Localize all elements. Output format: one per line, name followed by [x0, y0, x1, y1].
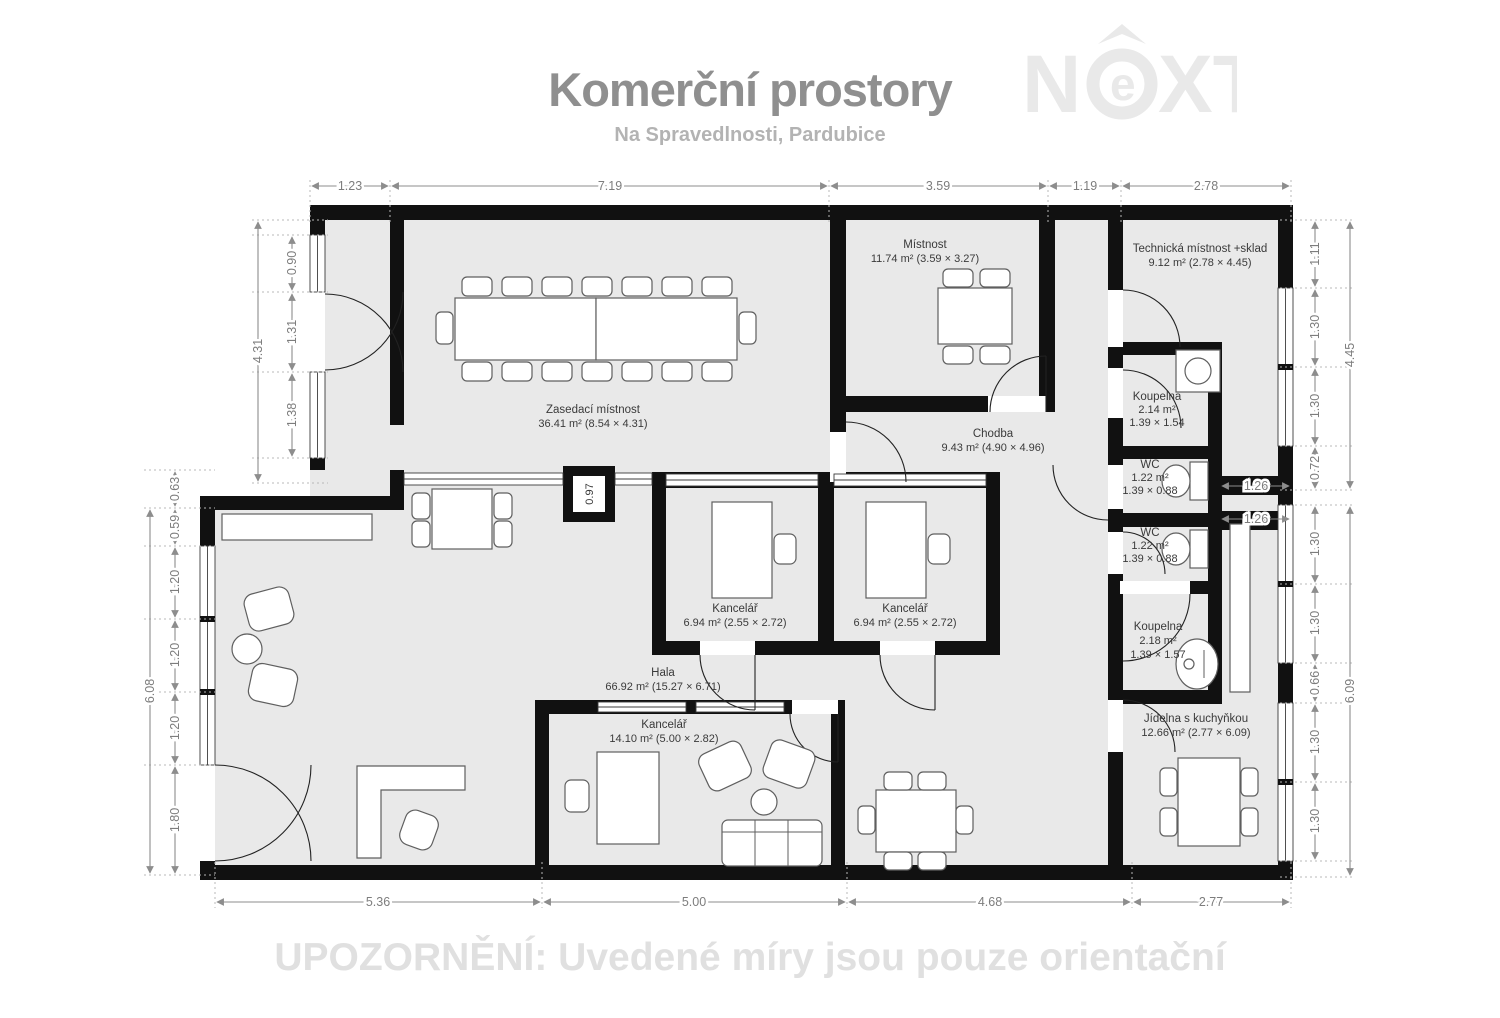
room-label: Místnost	[903, 239, 947, 251]
svg-text:1.11: 1.11	[1308, 242, 1322, 265]
room-label: Kancelář	[882, 603, 929, 615]
room-label: Koupelna	[1133, 391, 1182, 403]
svg-text:11.74 m² (3.59 × 3.27): 11.74 m² (3.59 × 3.27)	[871, 253, 979, 265]
floorplan-page: { "header": { "title": "Komerční prostor…	[0, 0, 1500, 1018]
room-label: Kancelář	[641, 719, 688, 731]
room-label: Technická místnost +sklad	[1133, 243, 1268, 255]
svg-text:4.45: 4.45	[1343, 343, 1357, 367]
dims-left-lower: 0.63 0.59 1.20 1.20 1.20 1.80 6.08	[143, 472, 182, 873]
desk	[866, 502, 926, 598]
office-chair	[565, 780, 589, 812]
room-label: Chodba	[973, 428, 1014, 440]
svg-text:1.30: 1.30	[1308, 730, 1322, 754]
svg-text:1.20: 1.20	[168, 716, 182, 740]
svg-text:1.23: 1.23	[338, 179, 362, 193]
furniture-zasedaci	[436, 277, 756, 381]
svg-text:4.68: 4.68	[978, 895, 1002, 909]
svg-text:5.36: 5.36	[366, 895, 390, 909]
svg-text:1.39 × 0.88: 1.39 × 0.88	[1122, 553, 1177, 565]
desk	[597, 752, 659, 844]
svg-text:12.66 m² (2.77 × 6.09): 12.66 m² (2.77 × 6.09)	[1141, 727, 1250, 739]
dims-right-lower: 1.30 1.30 0.66 1.30 1.30 6.09	[1308, 507, 1357, 875]
svg-text:14.10 m² (5.00 × 2.82): 14.10 m² (5.00 × 2.82)	[609, 733, 718, 745]
counter	[222, 514, 372, 540]
svg-text:6.08: 6.08	[143, 679, 157, 703]
svg-text:2.77: 2.77	[1199, 895, 1223, 909]
dims-bottom: 5.36 5.00 4.68 2.77	[217, 895, 1289, 909]
office-chair	[928, 534, 950, 564]
svg-text:1.22 m²: 1.22 m²	[1131, 540, 1169, 552]
room-label: WC	[1140, 459, 1159, 471]
toilet	[1190, 530, 1208, 568]
washbasin	[1176, 639, 1218, 689]
svg-text:6.94 m² (2.55 × 2.72): 6.94 m² (2.55 × 2.72)	[853, 617, 956, 629]
kitchen-counter	[1230, 524, 1250, 692]
side-table	[232, 634, 262, 664]
svg-text:1.38: 1.38	[285, 403, 299, 427]
svg-text:1.20: 1.20	[168, 643, 182, 667]
dims-left-upper: 0.90 1.31 1.38 4.31	[251, 222, 299, 481]
svg-text:1.26: 1.26	[1244, 479, 1268, 493]
svg-text:0.90: 0.90	[285, 251, 299, 275]
svg-text:0.63: 0.63	[168, 477, 182, 501]
dims-top: 1.23 7.19 3.59 1.19 2.78	[312, 179, 1289, 193]
room-label: Hala	[651, 667, 675, 679]
svg-text:1.80: 1.80	[168, 808, 182, 832]
conference-table	[596, 298, 737, 360]
svg-text:1.30: 1.30	[1308, 394, 1322, 418]
table	[432, 489, 492, 549]
svg-text:1.39 × 1.54: 1.39 × 1.54	[1129, 417, 1184, 429]
svg-text:6.09: 6.09	[1343, 679, 1357, 703]
svg-text:1.39 × 1.57: 1.39 × 1.57	[1130, 649, 1185, 661]
desk	[712, 502, 772, 598]
svg-text:3.59: 3.59	[926, 179, 950, 193]
svg-text:6.94 m² (2.55 × 2.72): 6.94 m² (2.55 × 2.72)	[683, 617, 786, 629]
svg-text:0.72: 0.72	[1308, 456, 1322, 480]
dims-right-upper: 1.11 1.30 1.30 0.72 4.45	[1308, 222, 1357, 488]
dining-table	[1178, 758, 1240, 846]
svg-text:1.39 × 0.88: 1.39 × 0.88	[1122, 485, 1177, 497]
svg-text:36.41 m² (8.54 × 4.31): 36.41 m² (8.54 × 4.31)	[538, 418, 647, 430]
svg-text:9.12 m² (2.78 × 4.45): 9.12 m² (2.78 × 4.45)	[1148, 257, 1251, 269]
disclaimer-watermark: UPOZORNĚNÍ: Uvedené míry jsou pouze orie…	[0, 936, 1500, 980]
svg-text:1.30: 1.30	[1308, 611, 1322, 635]
room-label: WC	[1140, 527, 1159, 539]
svg-text:2.18 m²: 2.18 m²	[1139, 635, 1177, 647]
room-label: Kancelář	[712, 603, 759, 615]
sofa	[722, 820, 822, 866]
svg-text:1.30: 1.30	[1308, 809, 1322, 833]
room-label: Zasedací místnost	[546, 404, 641, 416]
svg-text:2.14 m²: 2.14 m²	[1138, 404, 1176, 416]
room-label: Jídelna s kuchyňkou	[1144, 713, 1248, 725]
side-table	[751, 789, 777, 815]
svg-text:2.78: 2.78	[1194, 179, 1218, 193]
toilet	[1190, 462, 1208, 500]
svg-text:9.43 m² (4.90 × 4.96): 9.43 m² (4.90 × 4.96)	[941, 442, 1044, 454]
svg-text:1.26: 1.26	[1244, 512, 1268, 526]
svg-text:66.92 m² (15.27 × 6.71): 66.92 m² (15.27 × 6.71)	[605, 681, 720, 693]
svg-text:4.31: 4.31	[251, 339, 265, 363]
svg-text:1.31: 1.31	[285, 320, 299, 344]
shaft-dim-label: 0.97	[584, 483, 596, 504]
svg-text:1.30: 1.30	[1308, 532, 1322, 556]
svg-text:1.19: 1.19	[1073, 179, 1097, 193]
svg-text:0.66: 0.66	[1308, 671, 1322, 695]
dining-table	[876, 790, 956, 852]
svg-text:0.59: 0.59	[168, 515, 182, 539]
conference-table	[455, 298, 596, 360]
svg-text:7.19: 7.19	[598, 179, 622, 193]
floorplan-drawing: Zasedací místnost 36.41 m² (8.54 × 4.31)…	[0, 0, 1500, 1018]
office-chair	[774, 534, 796, 564]
svg-text:5.00: 5.00	[682, 895, 706, 909]
svg-text:1.20: 1.20	[168, 570, 182, 594]
room-label: Koupelna	[1134, 621, 1183, 633]
svg-text:1.22 m²: 1.22 m²	[1131, 472, 1169, 484]
svg-text:1.30: 1.30	[1308, 315, 1322, 339]
table	[938, 288, 1012, 344]
